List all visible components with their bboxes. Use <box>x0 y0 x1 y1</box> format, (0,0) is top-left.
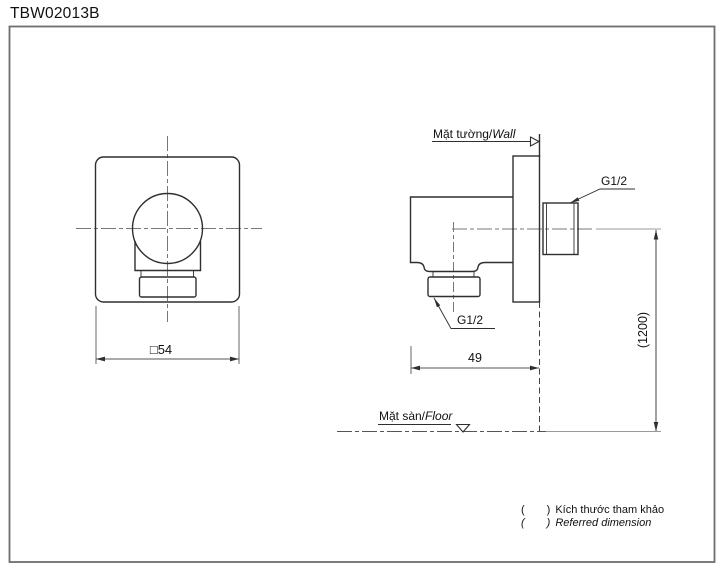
thread-leader-top <box>570 189 635 203</box>
legend-paren-close-2: ) <box>547 517 551 529</box>
wall-arrowhead <box>531 137 540 146</box>
wall-label-en: Wall <box>492 127 515 141</box>
ground-symbol <box>457 425 470 433</box>
width-dim-arrow-left <box>96 357 105 362</box>
floor-label-vi: Mặt sàn/ <box>379 409 425 423</box>
legend-text-en: Referred dimension <box>555 517 651 529</box>
legend-paren-close-1: ) <box>547 504 551 516</box>
technical-drawing-page: TBW02013B Mặt tường/Wall G1/2 G1/2 49 (1… <box>0 0 727 571</box>
legend-line-en: ()Referred dimension <box>521 517 651 529</box>
thread-arrow-top <box>570 197 579 203</box>
page-title: TBW02013B <box>10 5 100 22</box>
drawing-canvas <box>0 0 727 571</box>
wall-label: Mặt tường/Wall <box>433 128 515 141</box>
floor-label-en: Floor <box>425 409 452 423</box>
thread-size-label-bottom: G1/2 <box>457 314 483 327</box>
height-dim-arrow-bottom <box>654 422 659 432</box>
thread-size-label-top: G1/2 <box>601 175 627 188</box>
wall-label-vi: Mặt tường/ <box>433 127 492 141</box>
elbow-body-side <box>411 197 514 272</box>
drawing-frame <box>10 27 715 563</box>
floor-label: Mặt sàn/Floor <box>379 410 452 423</box>
legend-paren-open-2: ( <box>521 517 525 529</box>
depth-dim-arrow-right <box>530 366 539 371</box>
height-dim-arrow-top <box>654 230 659 240</box>
depth-dim-arrow-left <box>411 366 420 371</box>
legend-line-vi: ()Kích thước tham khảo <box>521 504 664 516</box>
width-dim-label: □54 <box>130 343 192 357</box>
legend-paren-open-1: ( <box>521 504 525 516</box>
legend-text-vi: Kích thước tham khảo <box>555 504 664 516</box>
thread-arrow-bottom <box>434 298 440 307</box>
height-dim-label: (1200) <box>637 300 651 360</box>
width-dim-arrow-right <box>230 357 239 362</box>
depth-dim-label: 49 <box>445 352 505 366</box>
